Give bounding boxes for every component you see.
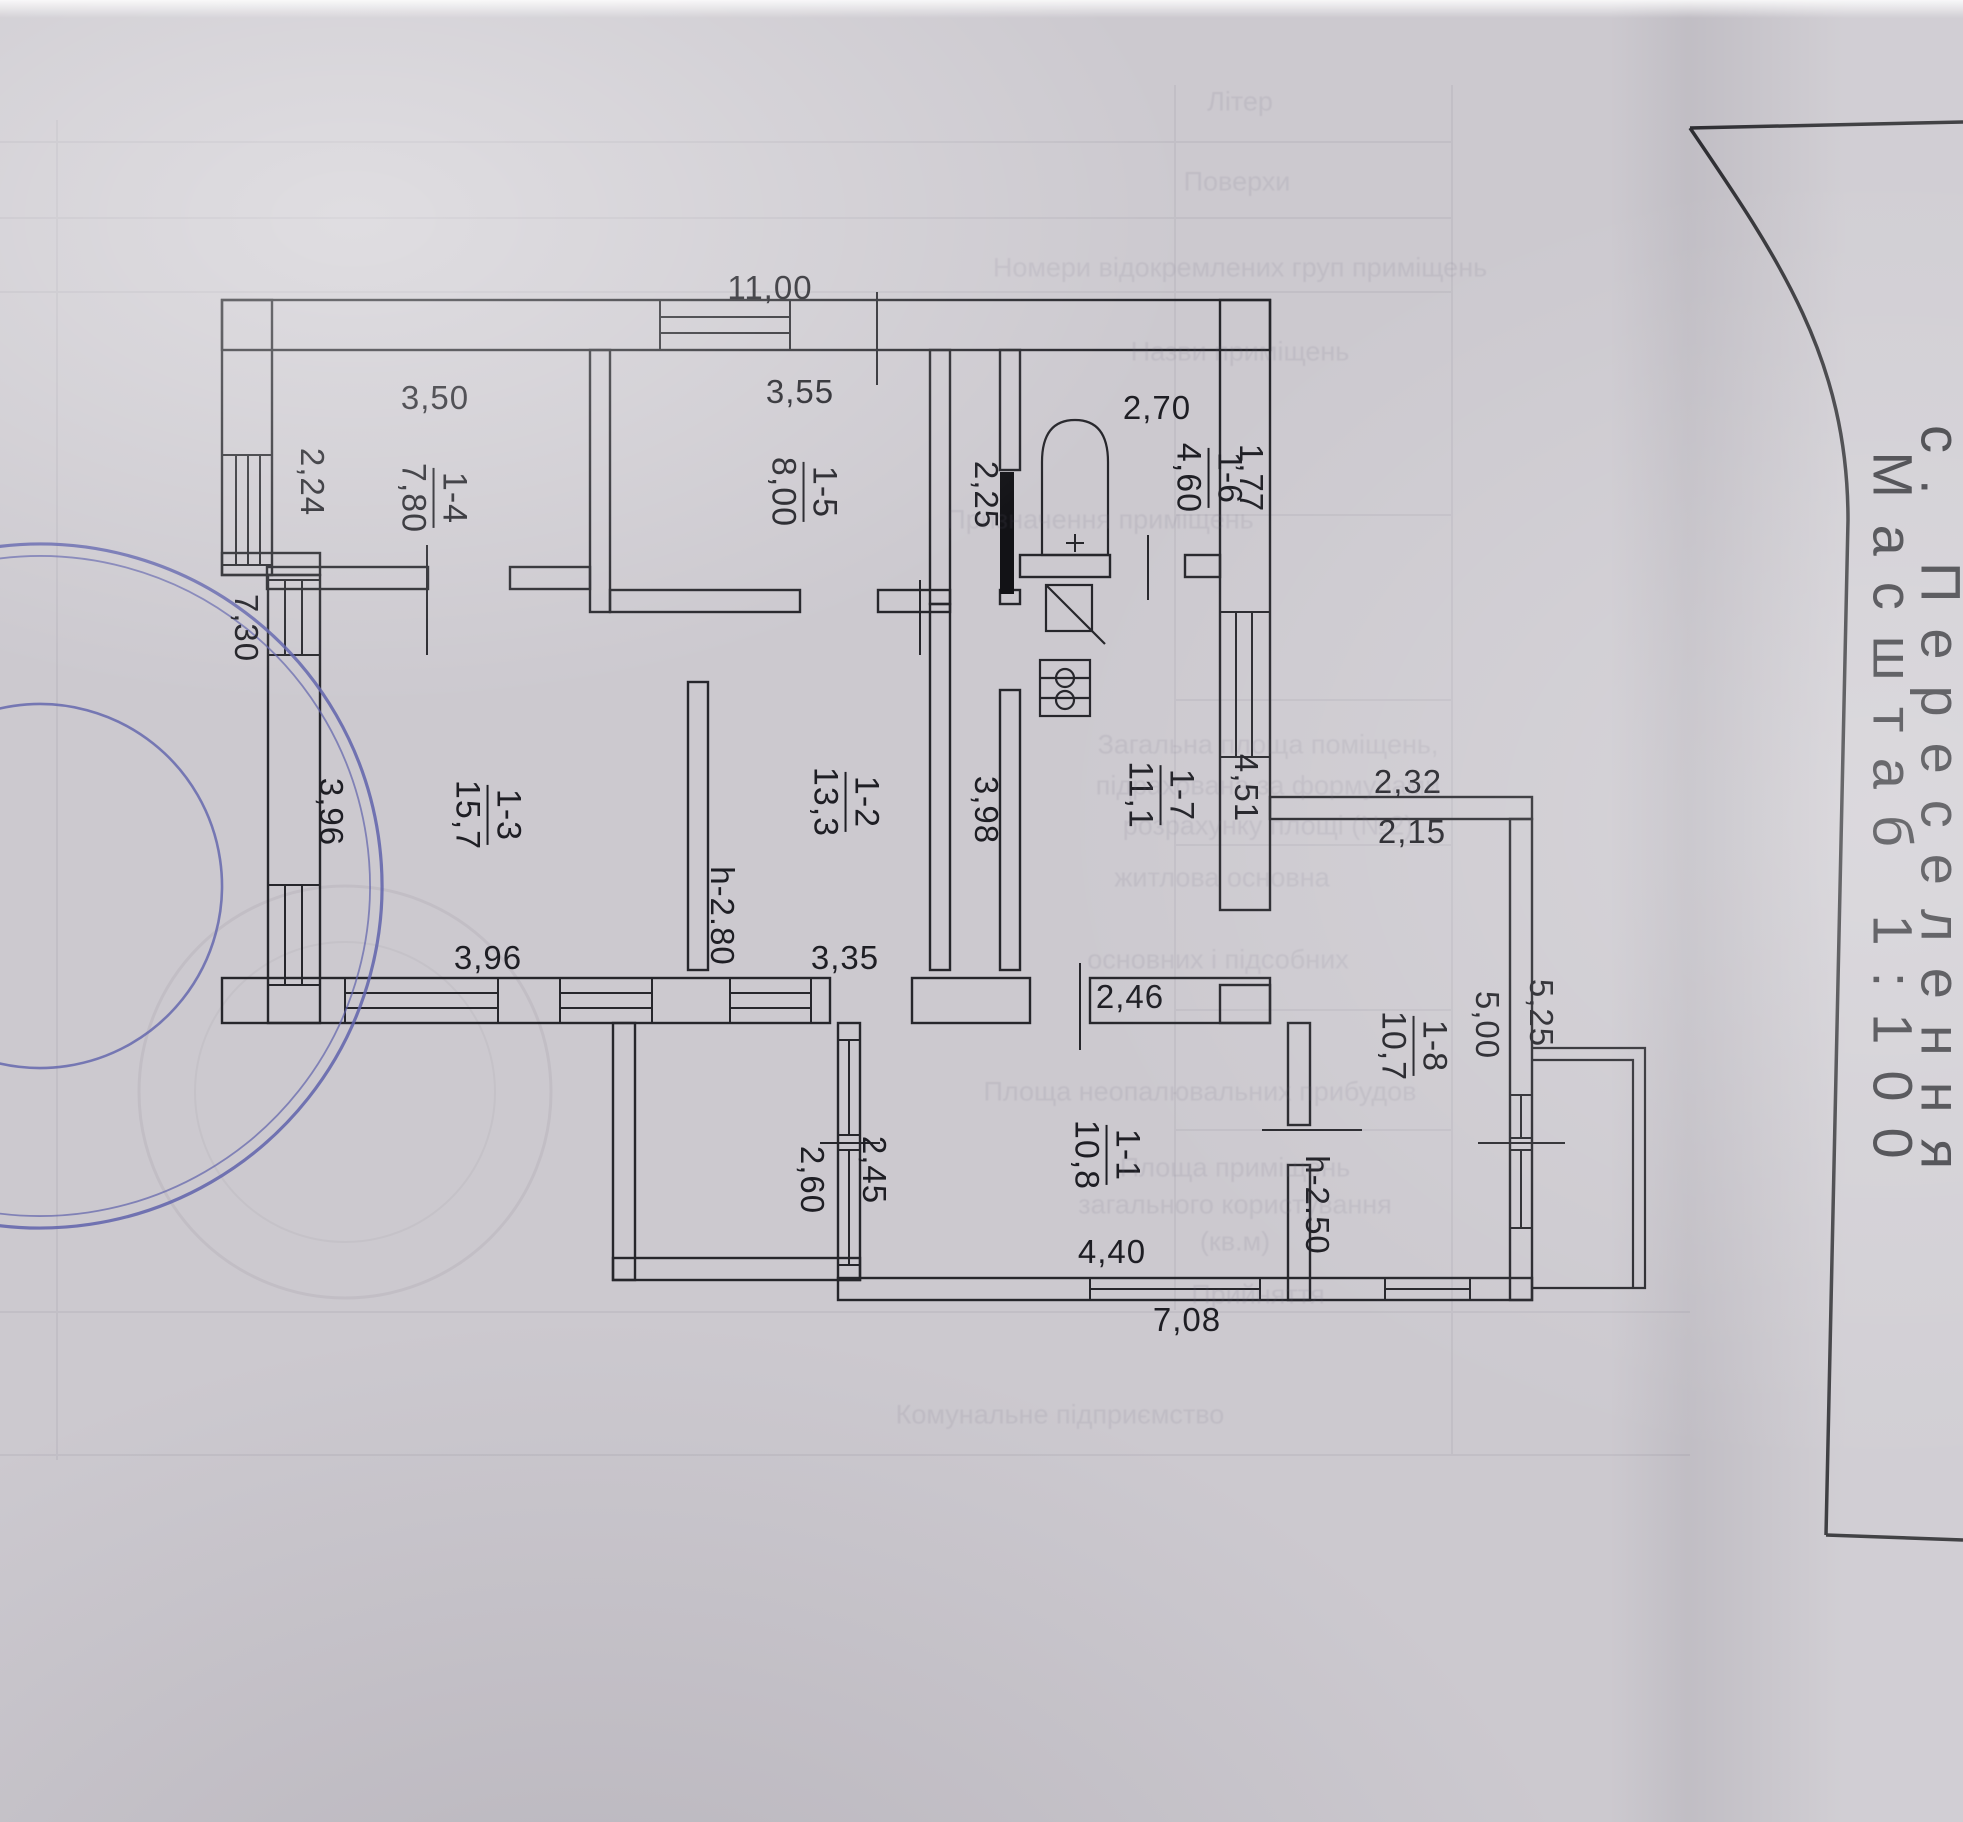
room-area: 8,00 <box>764 457 802 527</box>
dimension-label: 3,96 <box>454 939 522 977</box>
room-area: 4,60 <box>1169 443 1207 513</box>
room-number: 1-2 <box>845 772 884 832</box>
dimension-label: 5,00 <box>1468 991 1506 1059</box>
dimension-label: 3,55 <box>766 373 834 411</box>
bleed-through-text: житлова основна <box>1114 863 1329 894</box>
dimension-label: 3,96 <box>312 778 350 846</box>
dimension-label: 2,24 <box>293 448 331 516</box>
scanned-floor-plan-page: дарства України ✱ Міністерство регіональ… <box>0 0 1963 1822</box>
bleed-through-text: Загальна площа поміщень, <box>1098 730 1439 761</box>
bleed-through-text: Площа неопалювальних прибудов <box>984 1077 1417 1108</box>
bleed-through-text: Номери відокремлених груп приміщень <box>993 253 1487 284</box>
dimension-label: h-2.80 <box>703 866 741 966</box>
dimension-label: 3,35 <box>811 939 879 977</box>
bleed-through-text: Комунальне підприємство <box>896 1400 1225 1431</box>
room-area: 15,7 <box>448 780 486 850</box>
room-area: 13,3 <box>806 767 844 837</box>
bleed-through-text: Площа приміщень <box>1120 1153 1350 1184</box>
dimension-label: 2,45 <box>855 1136 893 1204</box>
dimension-label: 4,40 <box>1078 1233 1146 1271</box>
room-label: 1-64,60 <box>1169 443 1246 513</box>
room-number: 1-6 <box>1208 448 1247 508</box>
room-number: 1-8 <box>1413 1016 1452 1076</box>
room-number: 1-3 <box>487 785 526 845</box>
bleed-through-text: основних і підсобних <box>1087 945 1348 976</box>
room-area: 7,80 <box>394 463 432 533</box>
bleed-through-text: підрахована за формулами <box>1096 771 1440 802</box>
bleed-through-text: Поверхи <box>1184 167 1291 198</box>
room-area: 10,8 <box>1067 1120 1105 1190</box>
bleed-through-text: Прийняття <box>1191 1280 1324 1311</box>
bleed-through-text: загального користування <box>1078 1190 1392 1221</box>
room-label: 1-213,3 <box>806 767 883 837</box>
bleed-through-text: (кв.м) <box>1200 1227 1270 1258</box>
dimension-label: 2,70 <box>1123 389 1191 427</box>
bleed-through-text: Літер <box>1207 87 1273 118</box>
room-number: 1-4 <box>433 468 472 528</box>
bleed-through-text: Призначення приміщень <box>946 505 1253 536</box>
room-label: 1-315,7 <box>448 780 525 850</box>
dimension-label: 2,46 <box>1096 978 1164 1016</box>
room-number: 1-5 <box>803 462 842 522</box>
dimension-label: 5,25 <box>1522 979 1560 1047</box>
dimension-label: 3,98 <box>967 776 1005 844</box>
dimension-label: 7,30 <box>227 594 265 662</box>
title-scale: Масштаб 1:100 <box>1861 451 1926 1184</box>
bleed-through-text: розрахунку площі (№2) <box>1123 811 1414 842</box>
room-label: 1-58,00 <box>764 457 841 527</box>
room-label: 1-810,7 <box>1374 1011 1451 1081</box>
dimension-label: 3,50 <box>401 379 469 417</box>
plan-labels: 11,003,503,552,701,772,252,247,303,963,9… <box>0 0 1963 1822</box>
dimension-label: 11,00 <box>727 269 812 307</box>
room-label: 1-47,80 <box>394 463 471 533</box>
dimension-label: 2,60 <box>793 1146 831 1214</box>
bleed-through-text: Назви приміщень <box>1131 337 1350 368</box>
room-area: 10,7 <box>1374 1011 1412 1081</box>
